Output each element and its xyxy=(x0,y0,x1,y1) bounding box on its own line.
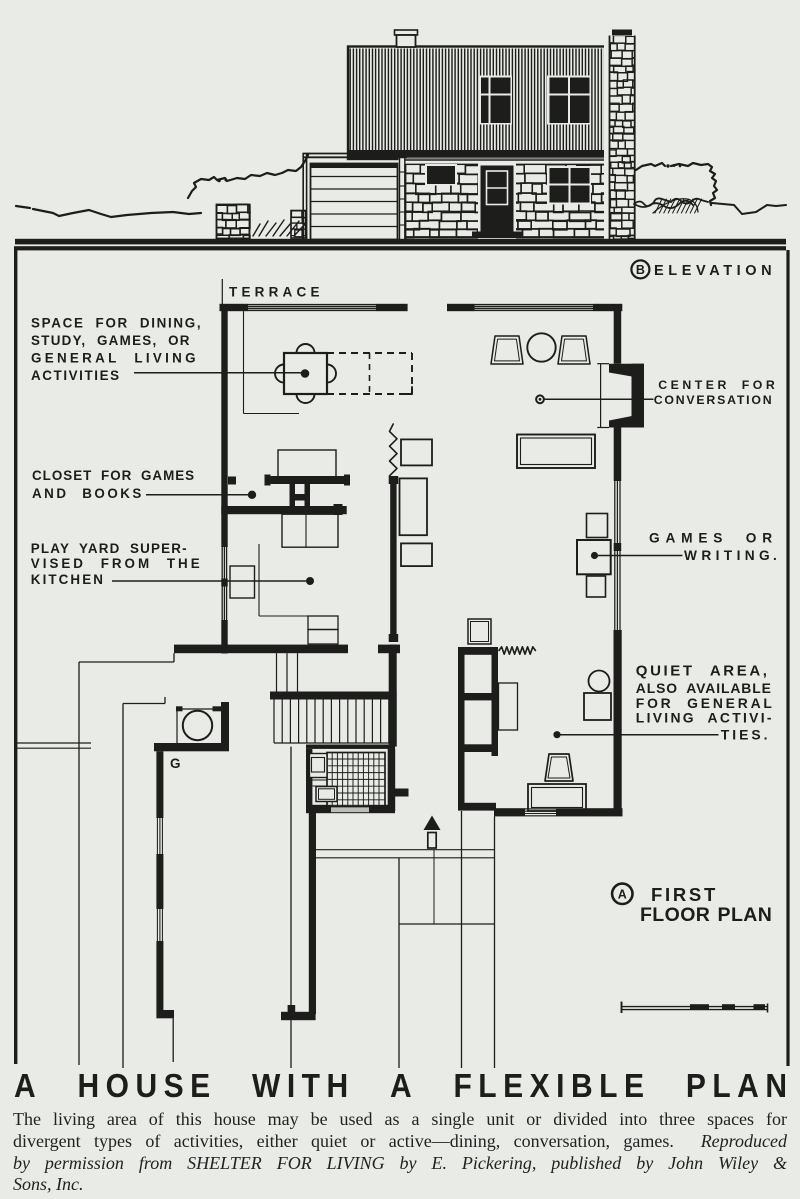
svg-text:FIRST: FIRST xyxy=(651,884,718,905)
svg-text:CLOSET FOR GAMES: CLOSET FOR GAMES xyxy=(32,468,195,483)
svg-text:LIVING ACTIVI-: LIVING ACTIVI- xyxy=(636,710,774,726)
svg-text:CENTER FOR: CENTER FOR xyxy=(658,378,778,392)
svg-text:GENERAL LIVING: GENERAL LIVING xyxy=(31,351,199,366)
svg-text:TIES.: TIES. xyxy=(721,727,771,743)
svg-text:B: B xyxy=(636,263,645,277)
svg-text:ELEVATION: ELEVATION xyxy=(654,263,776,279)
svg-text:STUDY, GAMES, OR: STUDY, GAMES, OR xyxy=(31,333,191,348)
svg-text:G: G xyxy=(170,756,182,771)
svg-text:ALSO AVAILABLE: ALSO AVAILABLE xyxy=(636,680,772,696)
svg-text:AND BOOKS: AND BOOKS xyxy=(32,486,144,501)
svg-text:KITCHEN: KITCHEN xyxy=(31,572,105,587)
svg-text:VISED FROM THE: VISED FROM THE xyxy=(31,556,203,571)
svg-text:FLOOR PLAN: FLOOR PLAN xyxy=(640,904,772,926)
svg-text:CONVERSATION: CONVERSATION xyxy=(654,393,774,407)
svg-text:QUIET AREA,: QUIET AREA, xyxy=(636,663,770,680)
svg-text:TERRACE: TERRACE xyxy=(229,285,324,300)
svg-text:ACTIVITIES: ACTIVITIES xyxy=(31,368,121,383)
svg-text:PLAY YARD SUPER-: PLAY YARD SUPER- xyxy=(31,541,188,556)
svg-text:GAMES OR: GAMES OR xyxy=(649,531,778,546)
svg-text:SPACE FOR DINING,: SPACE FOR DINING, xyxy=(31,316,202,331)
svg-text:A: A xyxy=(618,888,627,902)
svg-text:WRITING: WRITING xyxy=(684,548,774,563)
svg-text:.: . xyxy=(773,548,777,563)
